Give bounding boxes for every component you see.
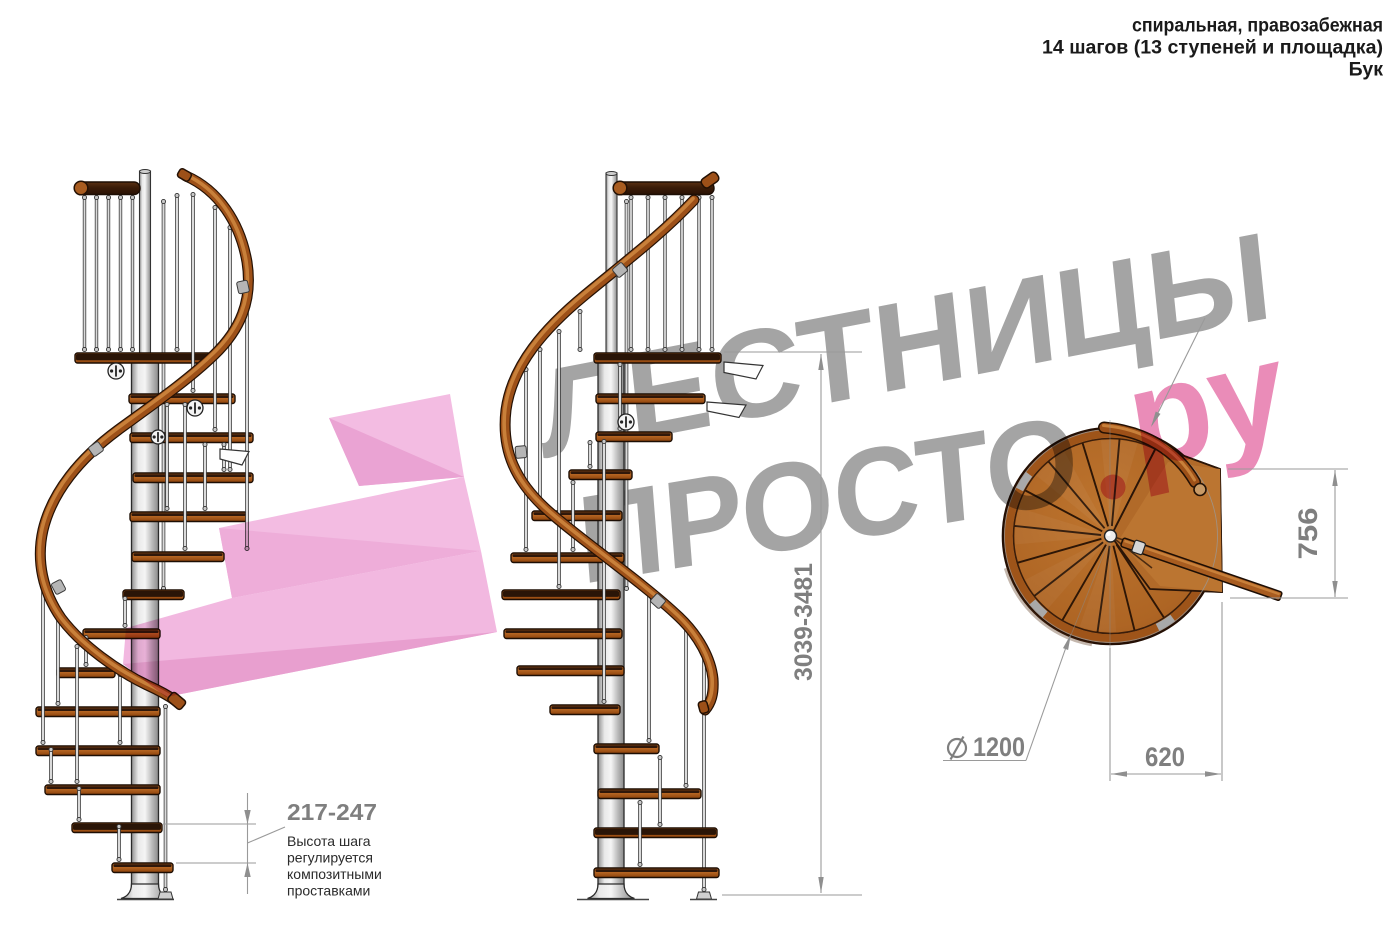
svg-text:композитными: композитными	[287, 866, 382, 882]
svg-text:3039-3481: 3039-3481	[790, 563, 818, 681]
svg-text:217-247: 217-247	[287, 799, 377, 825]
svg-text:Высота шага: Высота шага	[287, 833, 371, 849]
svg-text:14 шагов (13 ступеней и площад: 14 шагов (13 ступеней и площадка)	[1042, 37, 1383, 59]
svg-text:спиральная, правозабежная: спиральная, правозабежная	[1132, 15, 1383, 37]
svg-text:регулируется: регулируется	[287, 850, 373, 866]
svg-text:620: 620	[1145, 742, 1185, 772]
svg-text:756: 756	[1293, 508, 1323, 560]
svg-text:проставками: проставками	[287, 883, 370, 899]
svg-text:1200: 1200	[973, 732, 1025, 762]
svg-text:Бук: Бук	[1349, 59, 1384, 81]
